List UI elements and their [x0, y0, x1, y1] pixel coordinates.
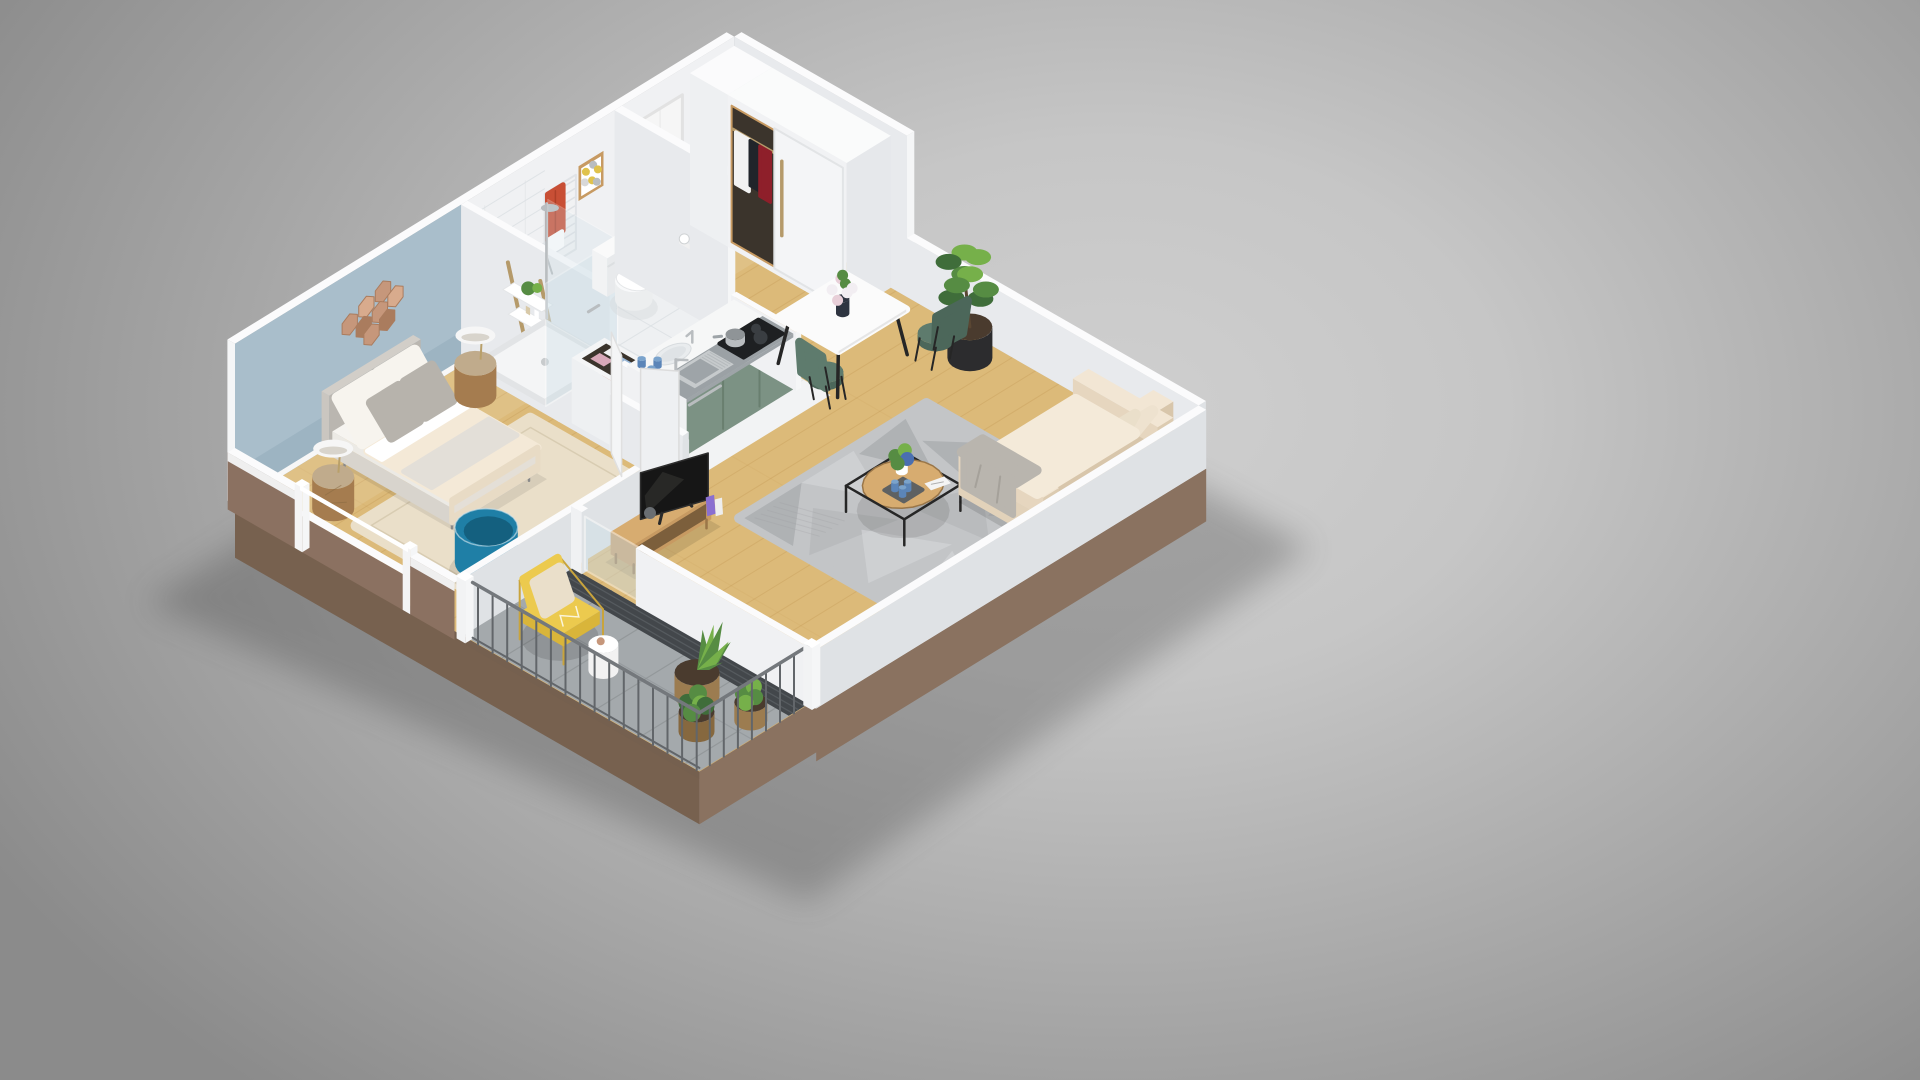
scene-canvas — [0, 0, 1920, 1080]
bedside-table-left — [312, 464, 354, 521]
beige-pillow — [535, 568, 570, 614]
apartment-3d-floor-plan — [0, 0, 1920, 1080]
bedside-table-right — [454, 351, 496, 408]
